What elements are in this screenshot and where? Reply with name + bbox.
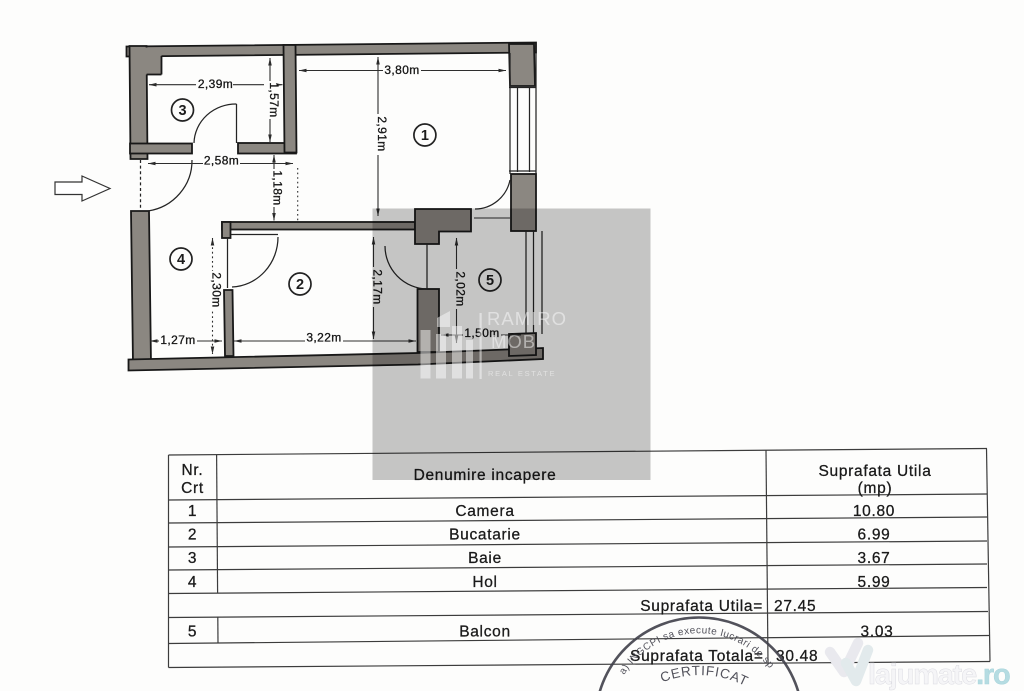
svg-text:1,27m: 1,27m	[160, 333, 195, 347]
svg-text:3,22m: 3,22m	[306, 331, 341, 345]
svg-text:Bucatarie: Bucatarie	[449, 527, 521, 544]
svg-text:2,30m: 2,30m	[210, 272, 224, 307]
svg-text:30.48: 30.48	[776, 648, 818, 665]
svg-text:2: 2	[296, 277, 304, 293]
svg-text:3.03: 3.03	[861, 624, 894, 641]
svg-text:5.99: 5.99	[858, 574, 891, 591]
svg-text:4: 4	[177, 252, 185, 268]
svg-text:1,18m: 1,18m	[271, 170, 285, 205]
svg-text:2,91m: 2,91m	[375, 116, 389, 151]
svg-text:REAL ESTATE: REAL ESTATE	[488, 369, 556, 378]
svg-text:lajumate.ro: lajumate.ro	[868, 659, 1010, 691]
svg-text:(mp): (mp)	[858, 480, 893, 497]
svg-text:MOB: MOB	[491, 331, 536, 352]
svg-text:Suprafata Utila: Suprafata Utila	[818, 463, 931, 480]
svg-text:3: 3	[178, 103, 186, 119]
svg-text:Balcon: Balcon	[459, 624, 511, 641]
svg-text:4: 4	[188, 574, 197, 591]
svg-text:Camera: Camera	[455, 503, 514, 520]
svg-text:Suprafata Utila=: Suprafata Utila=	[640, 598, 763, 615]
svg-text:3: 3	[188, 550, 197, 567]
svg-text:1: 1	[188, 503, 197, 520]
svg-text:2,39m: 2,39m	[198, 77, 233, 91]
svg-text:2,58m: 2,58m	[204, 154, 239, 168]
svg-text:RAMIRO: RAMIRO	[487, 308, 567, 329]
svg-text:1: 1	[421, 128, 429, 144]
svg-text:Crt: Crt	[181, 480, 204, 497]
svg-text:Baie: Baie	[468, 550, 502, 567]
svg-text:1,57m: 1,57m	[267, 82, 281, 117]
svg-text:10.80: 10.80	[853, 503, 895, 520]
svg-text:Nr.: Nr.	[182, 462, 204, 479]
svg-text:3.67: 3.67	[858, 550, 891, 567]
svg-text:5: 5	[188, 624, 197, 641]
svg-text:3,80m: 3,80m	[384, 63, 419, 77]
svg-text:27.45: 27.45	[774, 598, 816, 615]
svg-text:6.99: 6.99	[858, 527, 891, 544]
svg-text:Hol: Hol	[472, 574, 497, 591]
svg-text:2: 2	[188, 527, 197, 544]
